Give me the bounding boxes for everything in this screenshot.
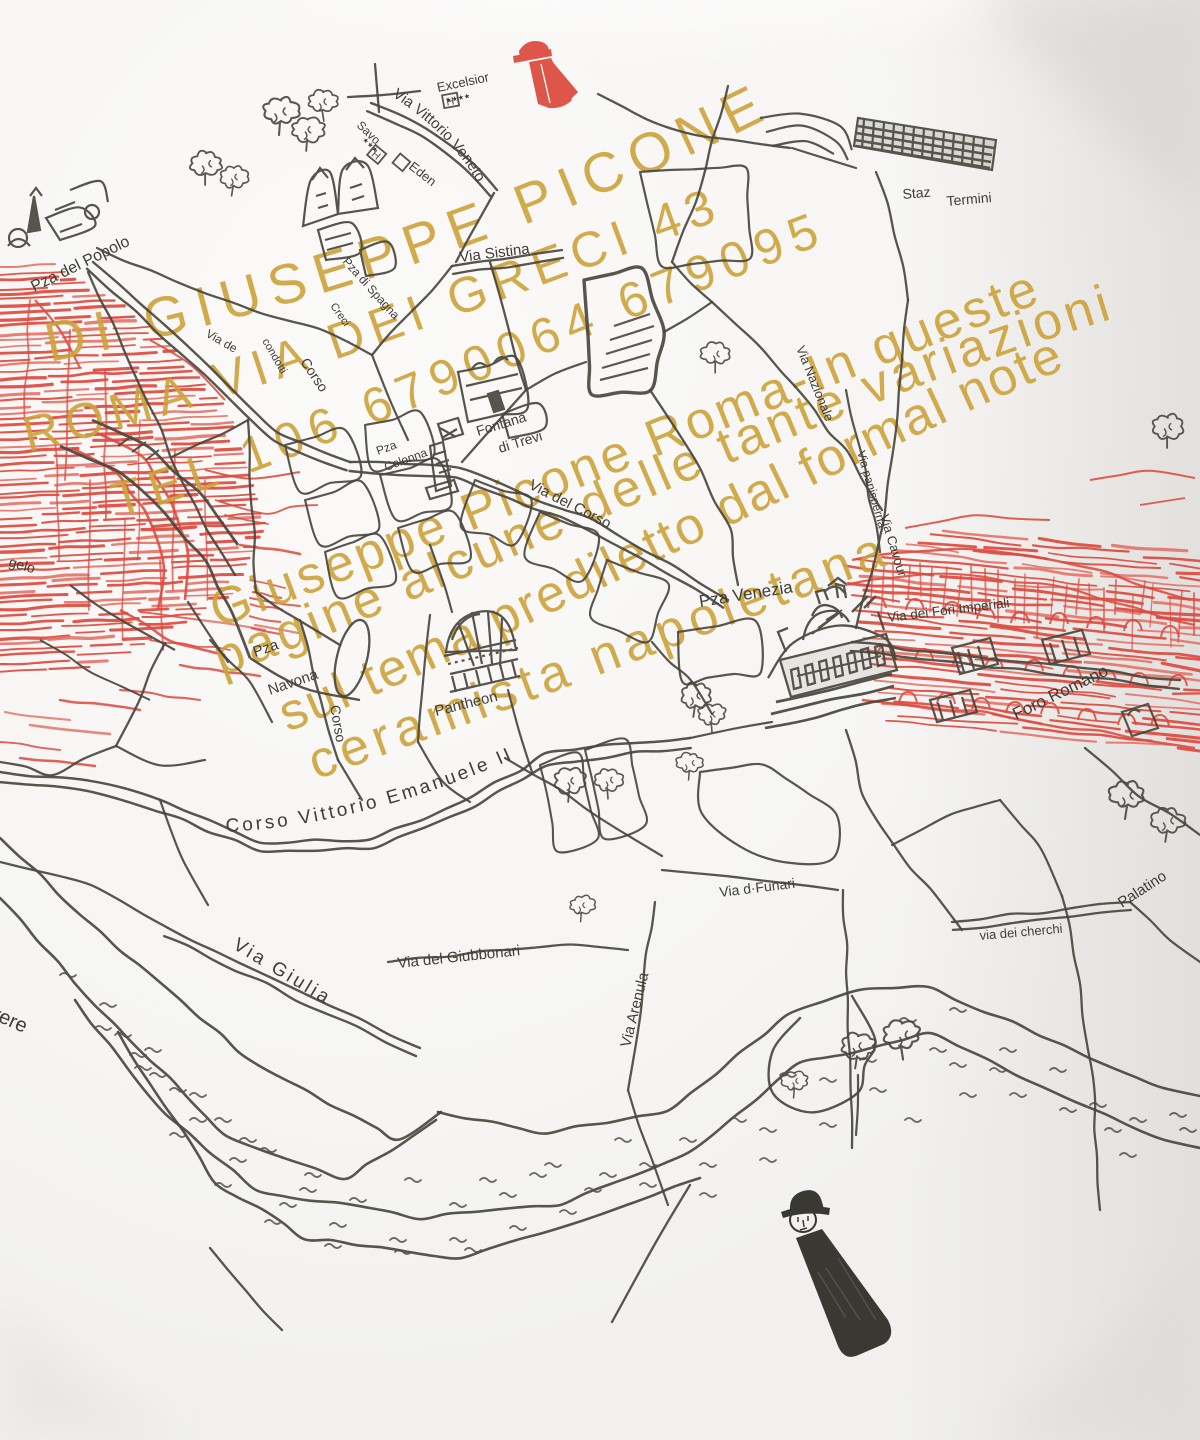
svg-text:Staz: Staz (902, 184, 931, 202)
